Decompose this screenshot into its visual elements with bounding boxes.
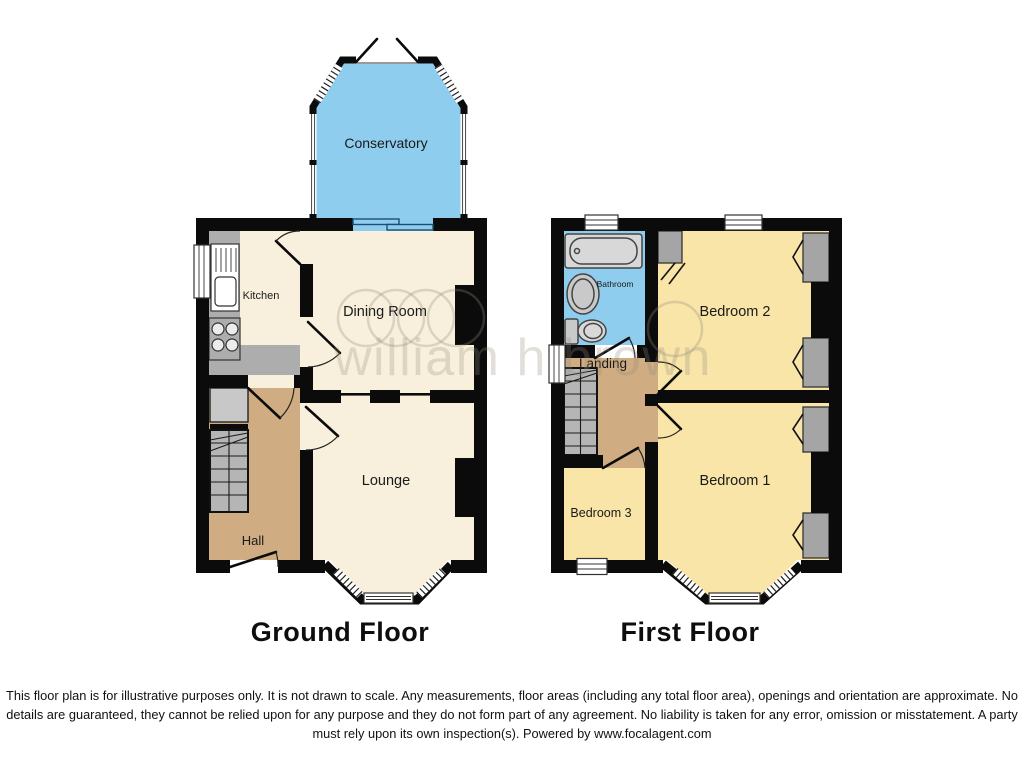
room-label-bathroom: Bathroom — [597, 279, 634, 289]
room-label-dining-room: Dining Room — [343, 304, 427, 320]
room-label-kitchen: Kitchen — [243, 290, 280, 302]
room-label-bedroom2: Bedroom 2 — [700, 304, 771, 320]
first-floor-plan: Bathroom Landing Bedroom 2 Bedroom 1 Bed… — [545, 22, 845, 607]
disclaimer-line-1: This floor plan is for illustrative purp… — [0, 686, 1024, 705]
room-label-landing: Landing — [579, 356, 627, 371]
kitchen-window — [194, 245, 210, 298]
hall-cupboard — [210, 388, 248, 422]
bedroom3-window — [577, 559, 607, 575]
bathtub — [565, 234, 642, 268]
chimney-breast-lounge — [455, 458, 474, 517]
ground-floor-plan: Conservatory Kitchen Dining Room Lounge … — [190, 22, 490, 607]
bathroom-window — [585, 215, 618, 230]
wash-basin — [567, 274, 599, 314]
room-label-bedroom3: Bedroom 3 — [570, 506, 631, 520]
room-label-lounge: Lounge — [362, 473, 410, 489]
toilet — [565, 319, 606, 344]
chimney-breast-bedroom1 — [811, 452, 829, 513]
room-label-bedroom1: Bedroom 1 — [700, 473, 771, 489]
bedroom2-window — [725, 215, 762, 230]
chimney-breast-bedroom2 — [811, 282, 829, 338]
sink-unit — [211, 244, 239, 311]
room-label-conservatory: Conservatory — [344, 135, 427, 151]
disclaimer-line-3: must rely upon its own inspection(s). Po… — [0, 724, 1024, 743]
landing-window — [549, 345, 565, 383]
room-label-hall: Hall — [242, 533, 265, 548]
hob — [209, 318, 240, 360]
stairs-down — [564, 368, 597, 455]
ground-floor-title: Ground Floor — [190, 617, 490, 648]
first-floor-title: First Floor — [545, 617, 835, 648]
bay-center-window — [364, 593, 413, 603]
disclaimer: This floor plan is for illustrative purp… — [0, 686, 1024, 743]
disclaimer-line-2: details are guaranteed, they cannot be r… — [0, 705, 1024, 724]
chimney-breast-dining — [455, 285, 474, 345]
stairs-up — [210, 430, 248, 512]
